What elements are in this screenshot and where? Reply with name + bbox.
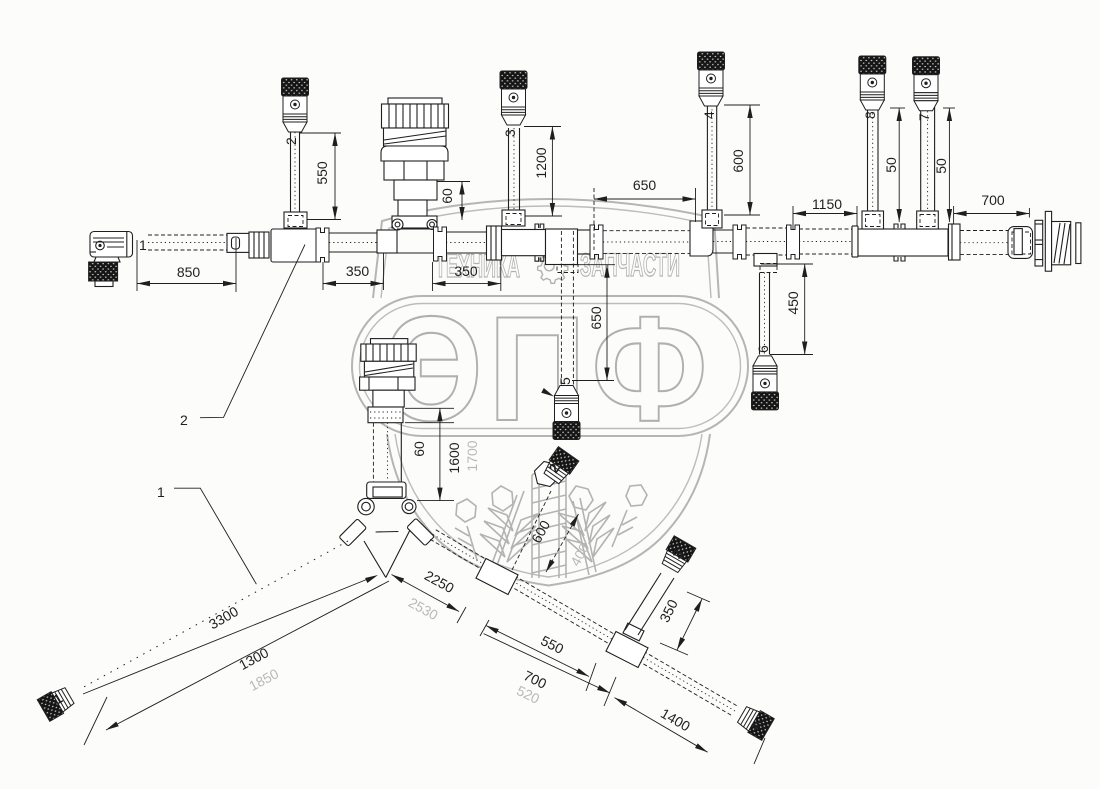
- svg-text:50: 50: [933, 158, 949, 174]
- svg-text:1: 1: [157, 484, 165, 500]
- svg-text:1150: 1150: [812, 196, 842, 212]
- svg-text:850: 850: [177, 264, 201, 280]
- svg-text:2: 2: [180, 412, 188, 428]
- svg-text:ЭПФ: ЭПФ: [386, 285, 713, 452]
- svg-text:5: 5: [557, 377, 573, 385]
- svg-text:2: 2: [283, 137, 299, 145]
- svg-text:1700: 1700: [464, 440, 480, 471]
- svg-text:50: 50: [883, 157, 899, 173]
- svg-text:600: 600: [730, 149, 746, 173]
- svg-text:650: 650: [588, 306, 604, 330]
- svg-text:4: 4: [701, 111, 717, 119]
- svg-text:60: 60: [411, 441, 427, 457]
- svg-text:1200: 1200: [533, 147, 549, 178]
- svg-text:650: 650: [633, 177, 657, 193]
- svg-text:60: 60: [439, 188, 455, 204]
- svg-text:8: 8: [862, 111, 878, 119]
- svg-text:450: 450: [785, 291, 801, 315]
- svg-text:6: 6: [755, 345, 771, 353]
- svg-text:1: 1: [139, 237, 147, 253]
- svg-text:350: 350: [346, 263, 370, 279]
- svg-text:3: 3: [502, 129, 518, 137]
- svg-text:350: 350: [454, 263, 478, 279]
- svg-text:7: 7: [916, 113, 932, 121]
- svg-text:700: 700: [981, 192, 1005, 208]
- svg-text:1600: 1600: [446, 442, 462, 473]
- svg-text:550: 550: [314, 161, 330, 185]
